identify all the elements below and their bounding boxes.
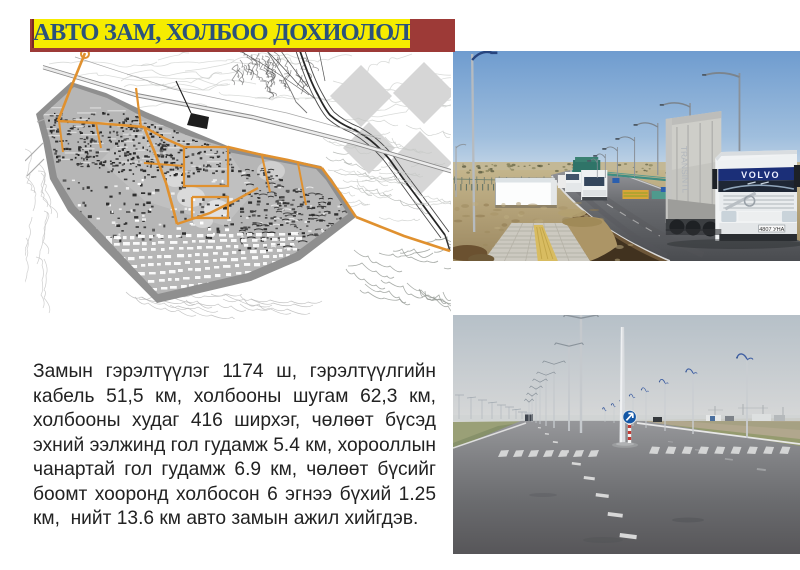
svg-text:4807 УНА: 4807 УНА [759, 227, 784, 233]
svg-text:TRANSINTL: TRANSINTL [679, 146, 691, 194]
svg-text:VOLVO: VOLVO [741, 170, 780, 180]
